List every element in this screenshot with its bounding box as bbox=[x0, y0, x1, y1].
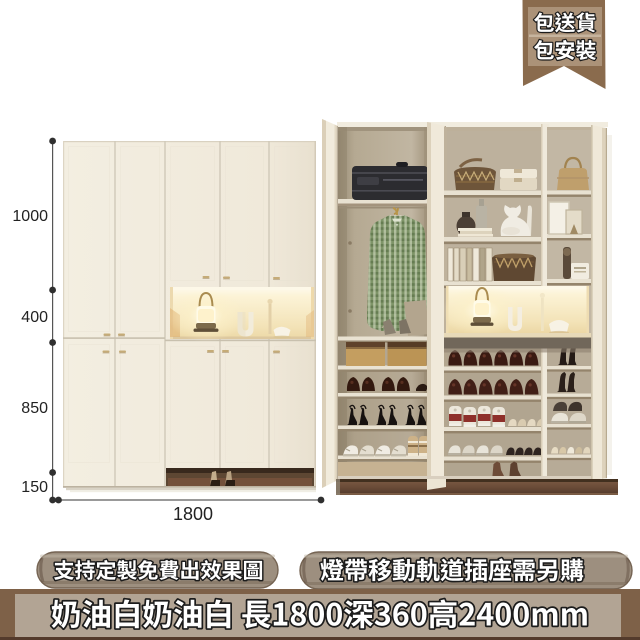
svg-text:400: 400 bbox=[21, 309, 48, 326]
svg-text:1800: 1800 bbox=[173, 504, 213, 524]
svg-text:1000: 1000 bbox=[12, 208, 48, 225]
svg-text:150: 150 bbox=[21, 479, 48, 496]
svg-text:850: 850 bbox=[21, 400, 48, 417]
